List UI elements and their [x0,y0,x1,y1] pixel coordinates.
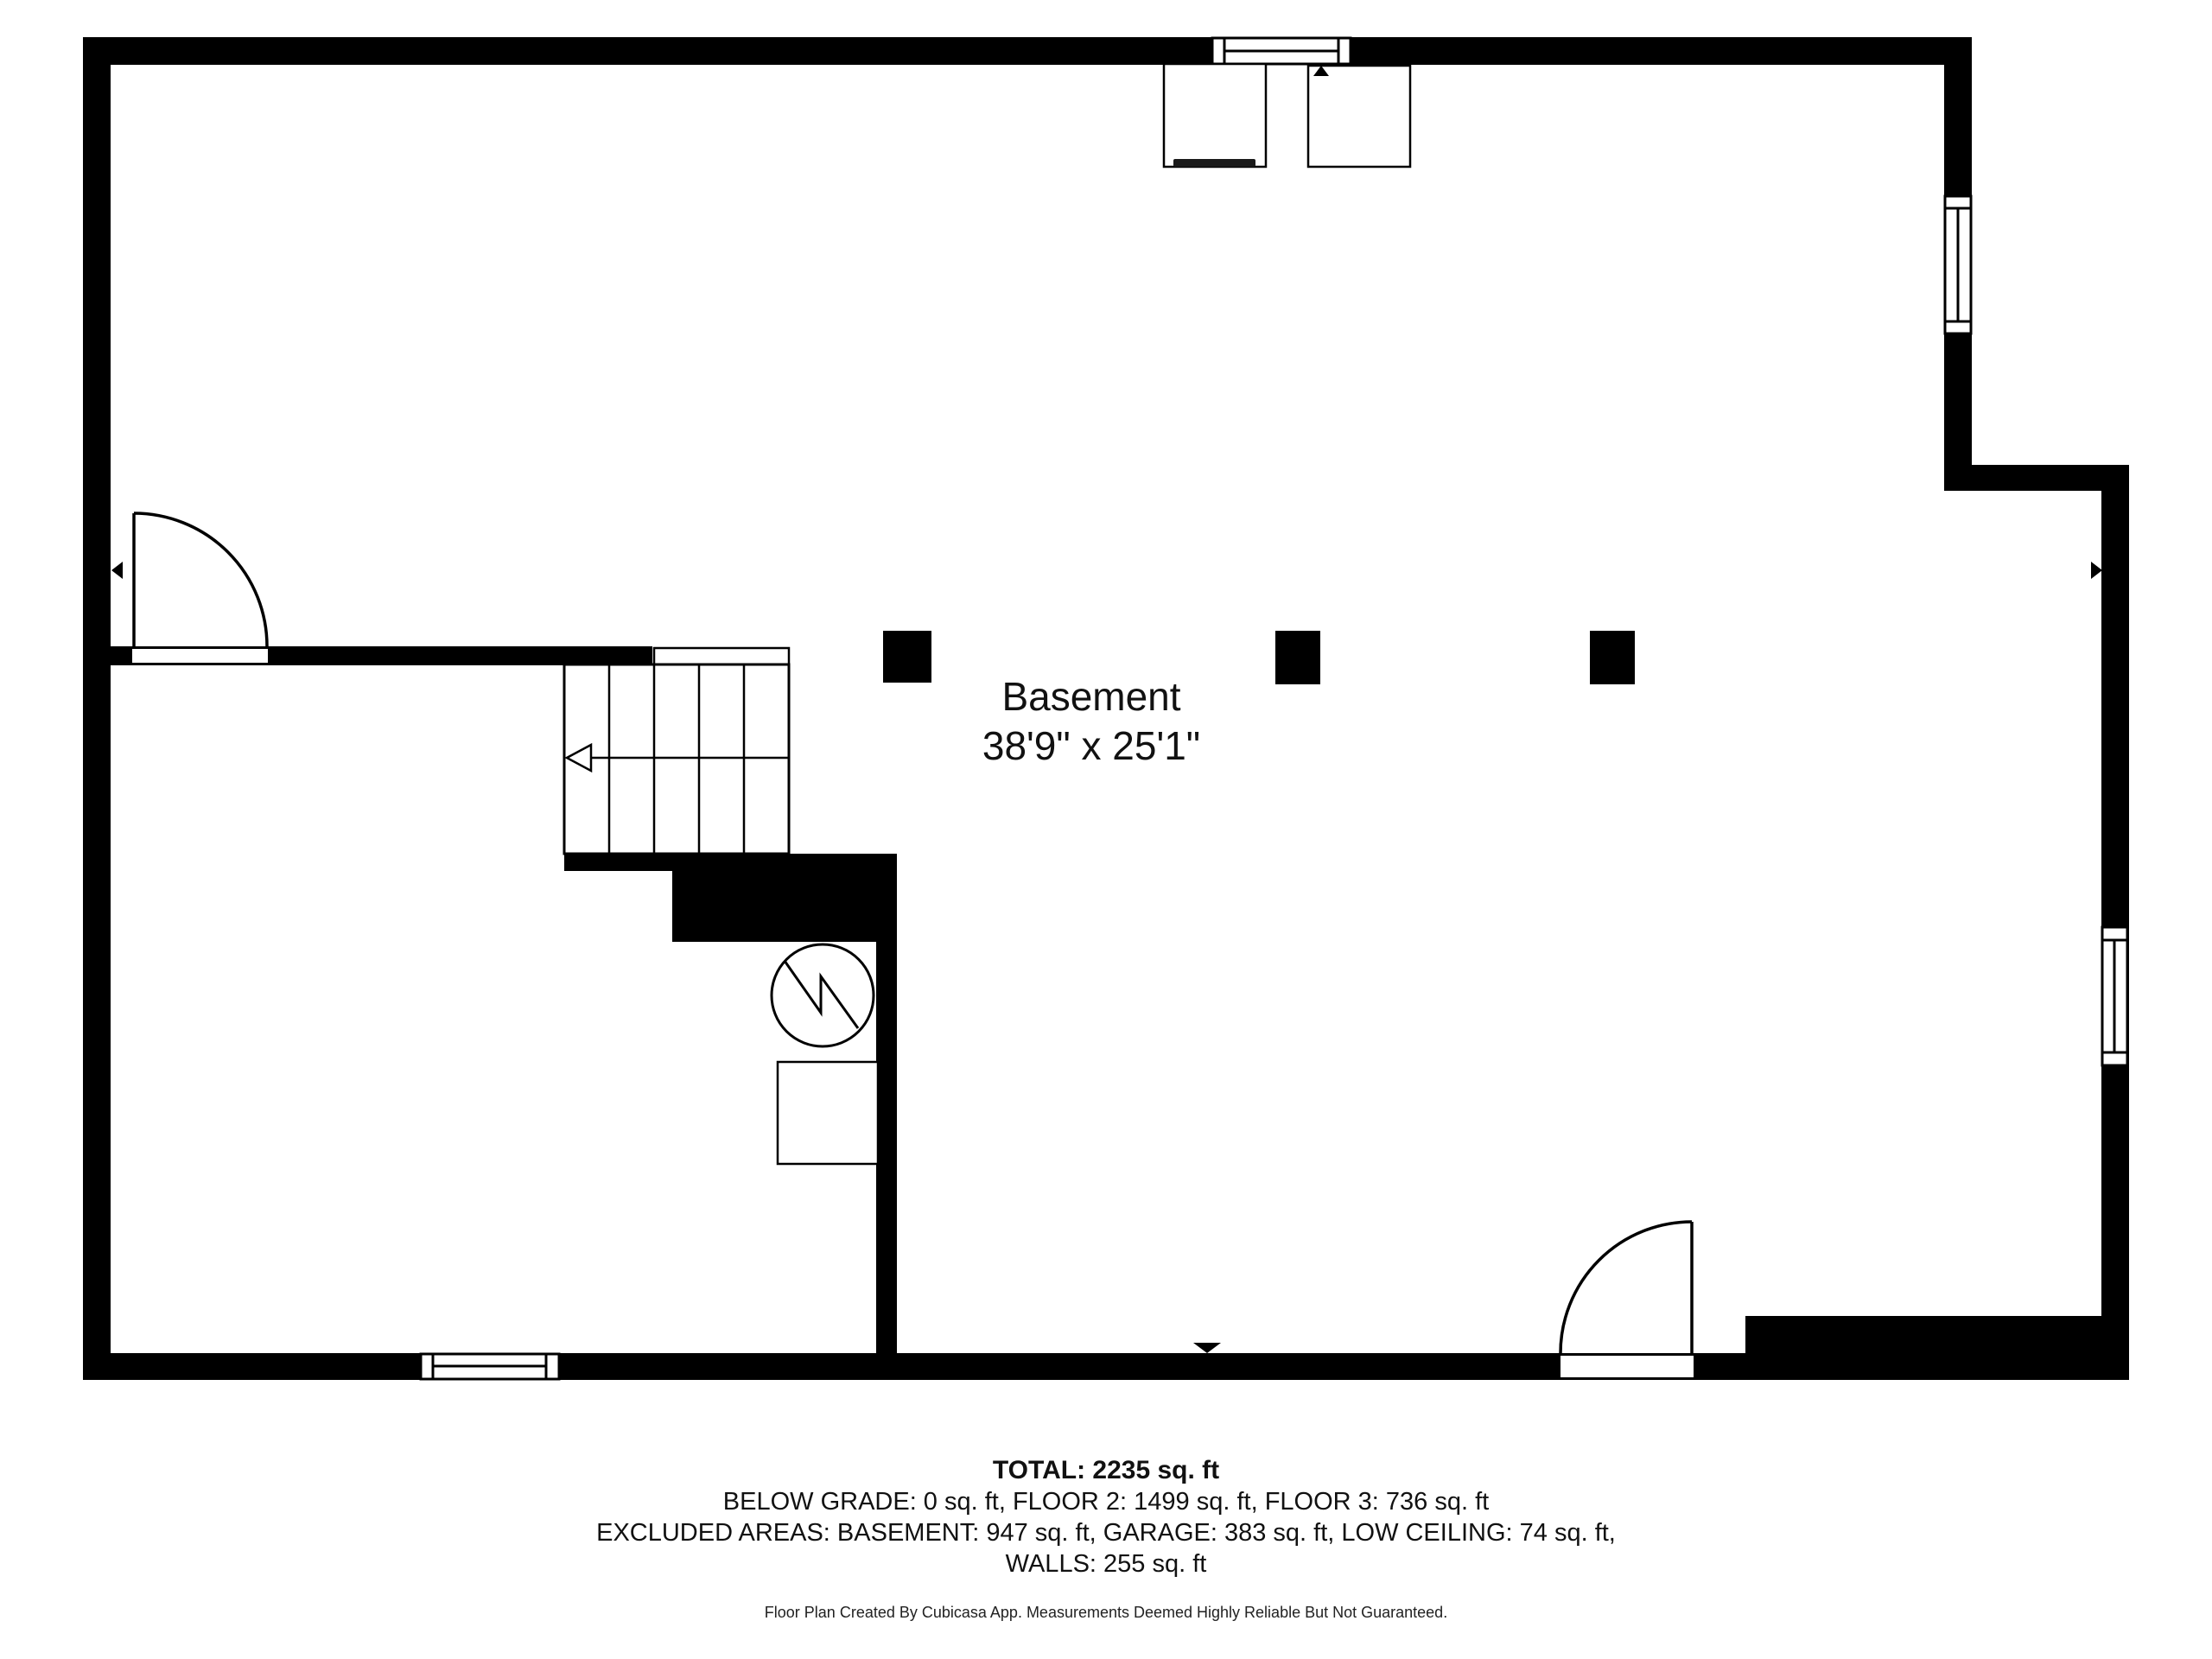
window-top-icon [1212,38,1351,64]
window-bottom-left-icon [421,1354,559,1379]
stair-outline [564,664,789,854]
room-dimensions: 38'9" x 25'1" [982,721,1200,771]
disclaimer-text: Floor Plan Created By Cubicasa App. Meas… [0,1602,2212,1623]
appliance-box-left [1164,64,1266,167]
utility-box [778,1062,878,1164]
summary-floors: BELOW GRADE: 0 sq. ft, FLOOR 2: 1499 sq.… [0,1486,2212,1517]
stair-landing [654,648,789,664]
window-right-upper-icon [1945,196,1971,334]
floor-plan-page: Basement 38'9" x 25'1" TOTAL: 2235 sq. f… [0,0,2212,1659]
plan-symbols [0,0,2212,1659]
summary-walls: WALLS: 255 sq. ft [0,1548,2212,1580]
summary-excluded-areas: EXCLUDED AREAS: BASEMENT: 947 sq. ft, GA… [0,1517,2212,1548]
appliance-handle [1173,159,1255,167]
summary-total: TOTAL: 2235 sq. ft [0,1455,2212,1486]
door-bottom-right-icon [1560,1222,1694,1380]
appliance-box-right [1308,66,1410,167]
door-left-icon [132,513,268,665]
section-marker-left-icon [111,562,123,579]
staircase [564,648,789,854]
section-marker-right-icon [2091,562,2102,579]
utility-symbol-icon [772,944,874,1046]
room-label: Basement 38'9" x 25'1" [982,672,1200,771]
entry-arrow-down-icon [1193,1343,1221,1353]
room-name: Basement [982,672,1200,721]
window-right-lower-icon [2102,927,2127,1065]
